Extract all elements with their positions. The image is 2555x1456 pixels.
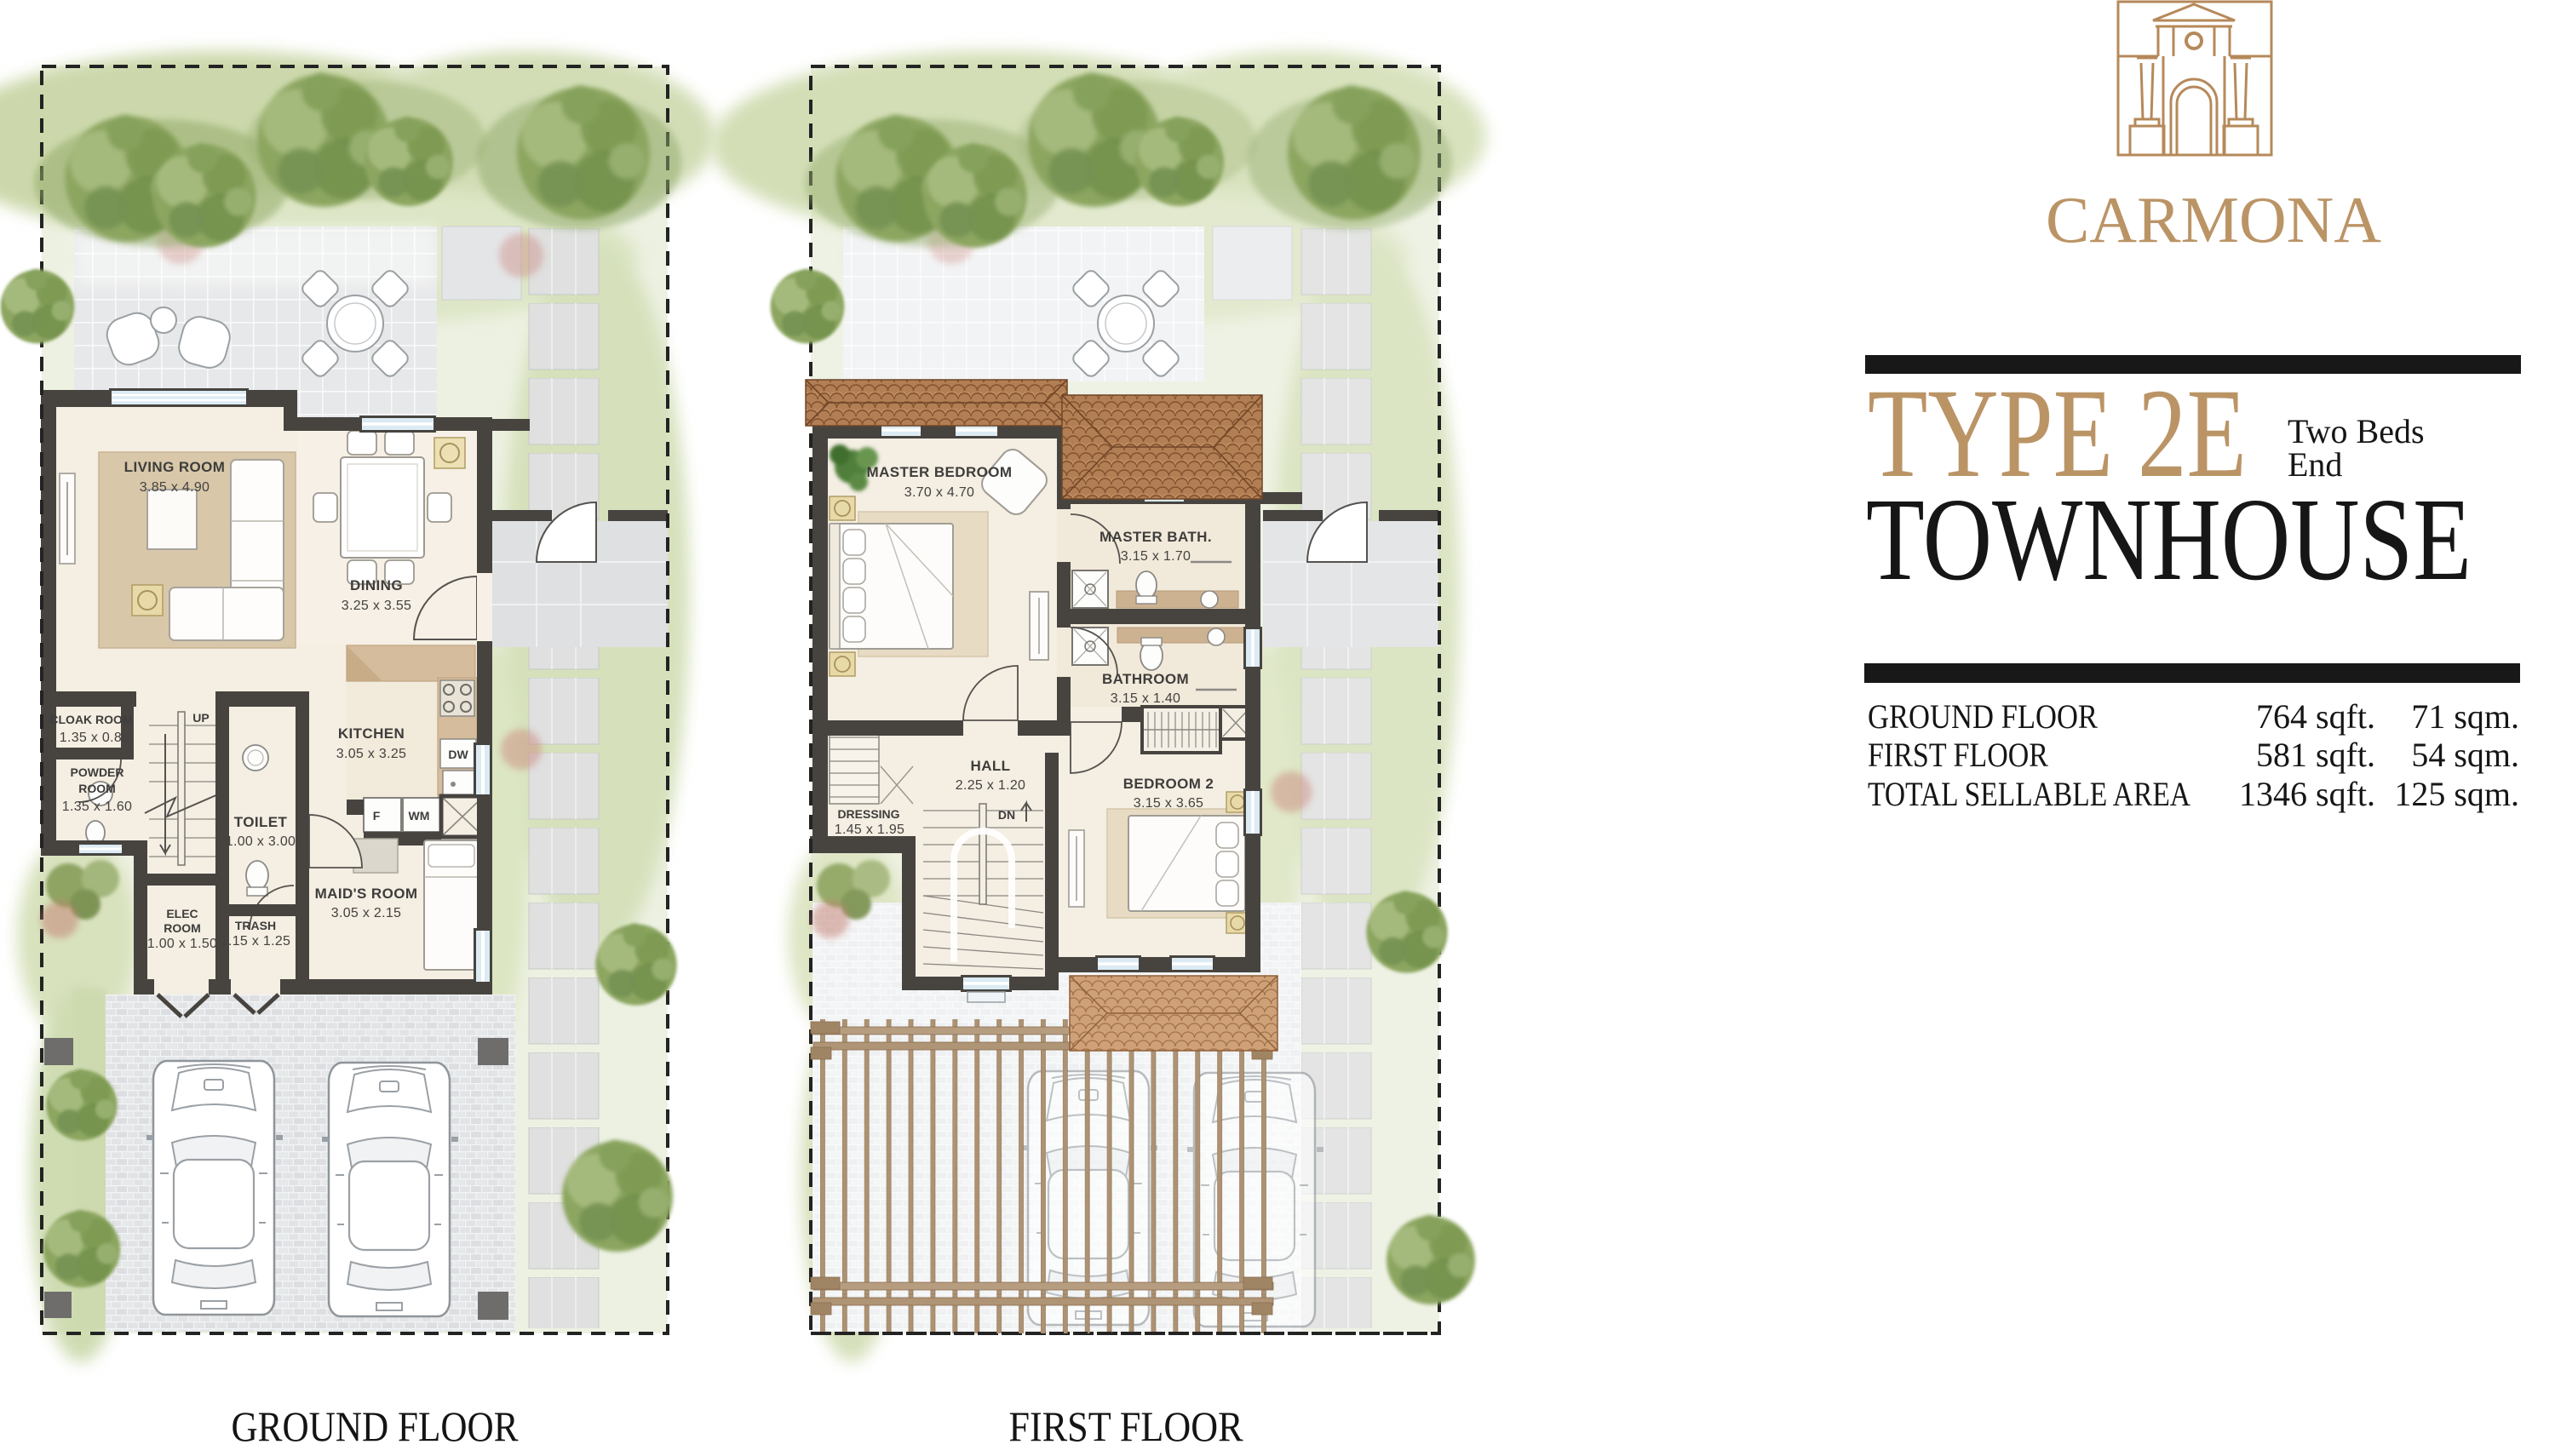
svg-text:DRESSING: DRESSING <box>837 807 899 821</box>
svg-text:CARMONA: CARMONA <box>2046 183 2381 256</box>
svg-text:UP: UP <box>192 711 209 725</box>
svg-text:WM: WM <box>409 809 430 823</box>
svg-text:KITCHEN: KITCHEN <box>338 725 405 742</box>
svg-text:GROUND FLOOR: GROUND FLOOR <box>232 1402 520 1450</box>
svg-text:1.00 x 1.50: 1.00 x 1.50 <box>147 937 217 951</box>
svg-text:54 sqm.: 54 sqm. <box>2411 736 2519 774</box>
svg-text:764 sqft.: 764 sqft. <box>2256 697 2375 736</box>
svg-text:TOTAL SELLABLE AREA: TOTAL SELLABLE AREA <box>1868 775 2190 813</box>
svg-text:LIVING ROOM: LIVING ROOM <box>124 459 226 475</box>
svg-text:1.15 x 1.25: 1.15 x 1.25 <box>221 934 290 949</box>
svg-text:3.05 x 3.25: 3.05 x 3.25 <box>336 747 406 761</box>
svg-text:HALL: HALL <box>971 758 1011 774</box>
svg-text:TRASH: TRASH <box>235 919 276 932</box>
svg-text:1.45 x 1.95: 1.45 x 1.95 <box>835 823 904 837</box>
svg-text:FIRST FLOOR: FIRST FLOOR <box>1009 1402 1244 1450</box>
svg-text:BATHROOM: BATHROOM <box>1102 671 1189 687</box>
svg-text:3.85 x 4.90: 3.85 x 4.90 <box>140 480 210 495</box>
svg-text:3.15 x 3.65: 3.15 x 3.65 <box>1134 796 1203 811</box>
svg-text:3.05 x 2.15: 3.05 x 2.15 <box>331 906 401 920</box>
svg-text:1346 sqft.: 1346 sqft. <box>2239 775 2375 813</box>
svg-text:581 sqft.: 581 sqft. <box>2256 736 2375 774</box>
svg-text:2.25 x 1.20: 2.25 x 1.20 <box>956 778 1025 793</box>
svg-text:CLOAK ROOM: CLOAK ROOM <box>49 713 132 726</box>
svg-text:DN: DN <box>998 808 1015 822</box>
svg-text:MASTER BATH.: MASTER BATH. <box>1100 529 1212 545</box>
svg-text:TOILET: TOILET <box>234 814 288 830</box>
svg-text:TOWNHOUSE: TOWNHOUSE <box>1866 474 2472 605</box>
svg-text:3.25 x 3.55: 3.25 x 3.55 <box>342 599 411 613</box>
svg-text:POWDER: POWDER <box>71 765 124 779</box>
svg-text:3.70 x 4.70: 3.70 x 4.70 <box>904 485 974 500</box>
svg-text:71 sqm.: 71 sqm. <box>2411 697 2519 736</box>
svg-text:FIRST FLOOR: FIRST FLOOR <box>1868 736 2048 774</box>
svg-text:DW: DW <box>448 748 468 761</box>
svg-text:GROUND FLOOR: GROUND FLOOR <box>1868 697 2098 736</box>
svg-text:ROOM: ROOM <box>78 782 116 795</box>
svg-text:ROOM: ROOM <box>164 921 201 935</box>
svg-text:F: F <box>373 809 381 823</box>
svg-text:3.15 x 1.70: 3.15 x 1.70 <box>1121 549 1191 564</box>
svg-text:MAID'S ROOM: MAID'S ROOM <box>315 886 418 902</box>
svg-text:1.35 x 1.60: 1.35 x 1.60 <box>62 800 132 814</box>
svg-text:125 sqm.: 125 sqm. <box>2394 775 2519 813</box>
svg-text:DINING: DINING <box>350 577 403 593</box>
svg-text:3.15 x 1.40: 3.15 x 1.40 <box>1111 691 1180 706</box>
svg-text:MASTER BEDROOM: MASTER BEDROOM <box>867 464 1013 480</box>
svg-text:1.00 x 3.00: 1.00 x 3.00 <box>226 834 296 849</box>
svg-text:BEDROOM 2: BEDROOM 2 <box>1123 776 1214 792</box>
svg-text:ELEC: ELEC <box>166 907 198 920</box>
svg-text:1.35 x 0.85: 1.35 x 0.85 <box>60 731 129 745</box>
